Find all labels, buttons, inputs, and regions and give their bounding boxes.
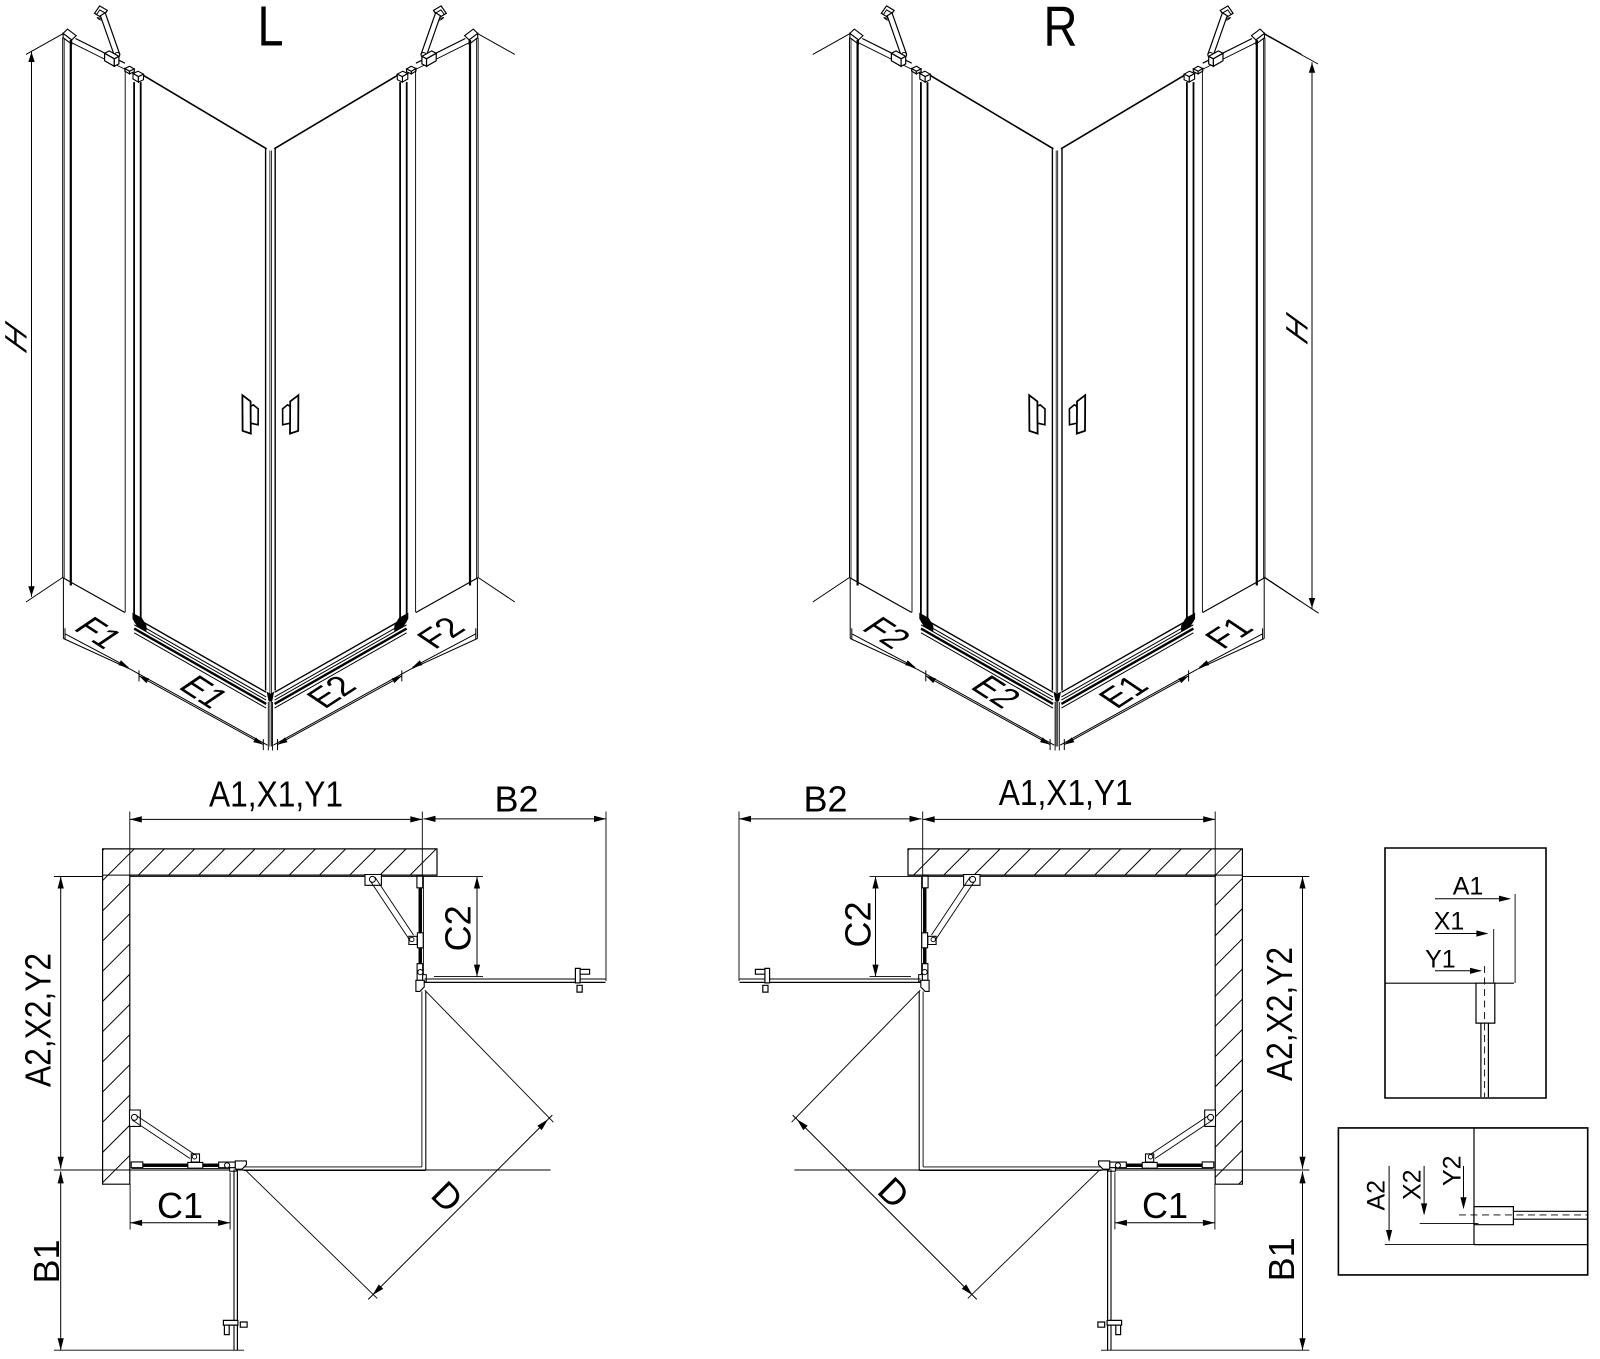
- svg-text:F2: F2: [854, 612, 919, 655]
- svg-text:A1: A1: [1453, 872, 1484, 900]
- svg-text:B2: B2: [803, 779, 847, 820]
- svg-text:E2: E2: [299, 670, 366, 714]
- svg-text:Y2: Y2: [1439, 1155, 1467, 1186]
- svg-text:D: D: [870, 1169, 917, 1216]
- svg-text:D: D: [424, 1173, 471, 1220]
- svg-text:H: H: [0, 317, 34, 358]
- svg-text:X2: X2: [1398, 1169, 1426, 1200]
- svg-text:A1,X1,Y1: A1,X1,Y1: [999, 772, 1133, 813]
- svg-text:Y1: Y1: [1425, 946, 1456, 974]
- svg-text:E1: E1: [1091, 670, 1158, 714]
- svg-text:C1: C1: [1142, 1185, 1188, 1226]
- svg-text:H: H: [1280, 309, 1315, 350]
- svg-text:B1: B1: [1261, 1237, 1302, 1281]
- svg-text:A2,X2,Y2: A2,X2,Y2: [18, 953, 59, 1087]
- svg-text:F2: F2: [409, 612, 474, 655]
- svg-text:E2: E2: [962, 670, 1029, 714]
- svg-text:F1: F1: [1197, 612, 1262, 655]
- svg-text:L: L: [258, 0, 284, 59]
- svg-text:C1: C1: [157, 1185, 203, 1226]
- svg-text:A2: A2: [1363, 1180, 1391, 1211]
- svg-text:X1: X1: [1434, 908, 1465, 936]
- svg-text:E1: E1: [170, 670, 237, 714]
- svg-text:C2: C2: [838, 901, 879, 947]
- svg-text:A1,X1,Y1: A1,X1,Y1: [209, 774, 343, 815]
- svg-text:R: R: [1044, 0, 1078, 58]
- svg-text:C2: C2: [438, 905, 479, 951]
- svg-text:B1: B1: [26, 1239, 67, 1283]
- svg-text:A2,X2,Y2: A2,X2,Y2: [1259, 947, 1300, 1081]
- svg-text:F1: F1: [65, 612, 130, 655]
- svg-text:B2: B2: [494, 779, 538, 820]
